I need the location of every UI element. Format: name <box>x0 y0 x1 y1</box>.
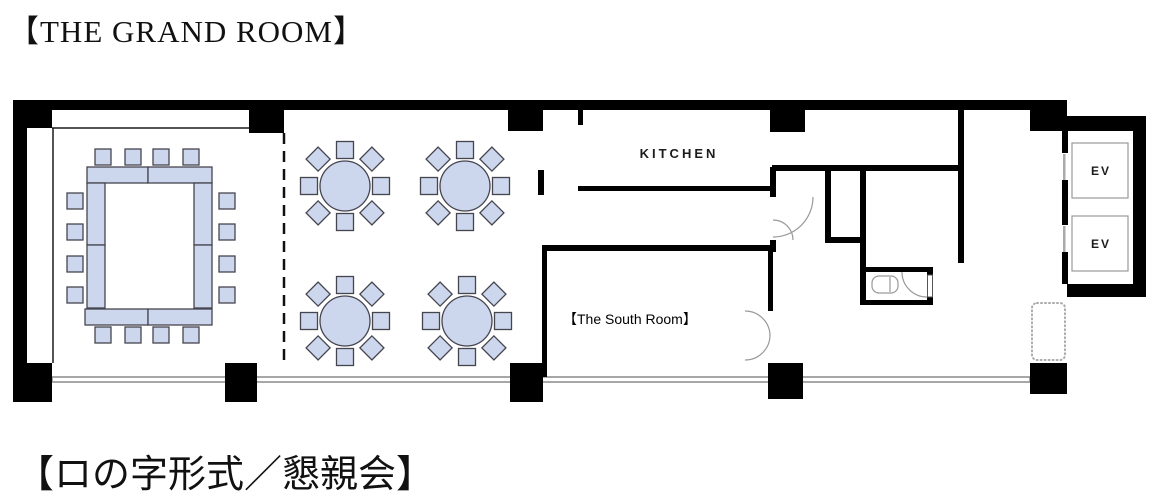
ev-label: EV <box>1091 164 1111 178</box>
pillars <box>13 100 1067 402</box>
door-arc-icon <box>773 197 813 237</box>
closet-wall <box>860 171 866 305</box>
pillar <box>1030 363 1067 394</box>
hall-wall-seg <box>770 240 776 252</box>
wall-stub <box>578 108 583 125</box>
round-table-8-seats <box>421 142 510 231</box>
closet-wall <box>825 171 831 237</box>
toilet-fixture-icon <box>872 276 898 293</box>
south-room-label: 【The South Room】 <box>563 311 697 327</box>
back-of-house-walls <box>770 107 964 305</box>
hall-wall-seg <box>770 167 776 197</box>
chair <box>125 327 141 343</box>
floor-plan-page: 【THE GRAND ROOM】 <box>0 0 1156 502</box>
table-segment <box>87 245 105 308</box>
pillar <box>249 100 284 133</box>
setup-caption: 【ロの字形式／懇親会】 <box>16 443 434 498</box>
chair <box>67 287 83 303</box>
round-table-8-seats <box>301 142 390 231</box>
pillar <box>13 363 52 402</box>
round-table-area <box>301 142 512 366</box>
chair <box>183 327 199 343</box>
plant-icon <box>1032 303 1065 360</box>
square-table-setup <box>67 149 235 343</box>
chair <box>219 256 235 272</box>
chair <box>95 149 111 165</box>
table-segment <box>148 167 212 183</box>
south-room-door <box>745 311 770 360</box>
chair <box>67 224 83 240</box>
pillar <box>768 363 803 399</box>
hallway-door <box>773 197 813 240</box>
table-segment <box>194 183 212 245</box>
chair <box>95 327 111 343</box>
back-wall-vertical <box>958 107 964 263</box>
elevators: EV EV <box>1072 143 1128 271</box>
round-table-8-seats <box>301 277 390 366</box>
door-arc-icon <box>745 335 770 360</box>
kitchen-counter-wall <box>578 186 770 191</box>
floor-plan: KITCHEN 【The South Room】 <box>0 0 1156 502</box>
toilet-door-panel <box>928 275 933 297</box>
pillar <box>770 100 805 132</box>
chair <box>67 193 83 209</box>
inner-wall-lines <box>52 128 249 363</box>
toilet-wall-top <box>865 267 933 272</box>
closet-wall <box>825 237 865 243</box>
ev-shaft-wall-left-seg <box>1062 180 1068 225</box>
toilet-wall-bottom <box>860 300 933 305</box>
chair <box>219 287 235 303</box>
chair <box>183 149 199 165</box>
back-wall-horizontal <box>772 165 960 171</box>
ev-door <box>1063 154 1066 180</box>
chair <box>153 327 169 343</box>
pillar <box>225 363 257 402</box>
pillar <box>13 100 52 128</box>
toilet-room <box>860 267 933 305</box>
table-segment <box>87 183 105 245</box>
south-room-wall-left <box>542 245 547 377</box>
wall-stub <box>538 170 544 195</box>
ev-label: EV <box>1091 237 1111 251</box>
kitchen-label: KITCHEN <box>640 146 719 161</box>
ev-shaft-wall-right <box>1133 116 1146 297</box>
table-segment <box>87 167 148 183</box>
door-arc-icon <box>745 311 770 336</box>
door-arc-icon <box>902 272 927 297</box>
wall-corner-step <box>1030 100 1067 131</box>
chair <box>219 193 235 209</box>
chair <box>219 224 235 240</box>
table-segment <box>148 309 212 325</box>
table-segment <box>194 245 212 308</box>
ev-shaft-wall-left-seg <box>1062 131 1068 153</box>
table-segment <box>85 309 148 325</box>
chair <box>125 149 141 165</box>
ev-shaft-wall-bottom <box>1067 284 1146 297</box>
pillar <box>510 363 543 402</box>
ev-door <box>1063 226 1066 252</box>
chair <box>67 256 83 272</box>
ev-shaft-wall-left-seg <box>1062 252 1068 284</box>
south-room-wall-right <box>768 251 773 311</box>
south-room-wall-top <box>542 245 773 251</box>
chair <box>153 149 169 165</box>
round-table-8-seats <box>423 277 512 366</box>
wall-left <box>13 100 27 400</box>
pillar <box>508 100 543 131</box>
